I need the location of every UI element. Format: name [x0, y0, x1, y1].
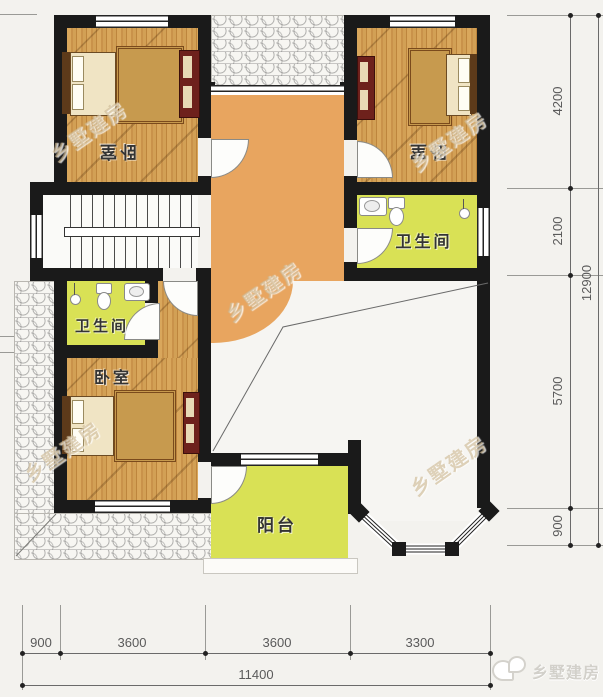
wall	[211, 453, 241, 466]
dimension-line	[22, 685, 490, 686]
bay-wall-post	[445, 542, 459, 556]
window	[390, 15, 455, 28]
dim-tick	[488, 651, 493, 656]
dim-tick	[348, 651, 353, 656]
dim-tick	[20, 651, 25, 656]
dim-tick	[568, 13, 573, 18]
dimension-label: 4200	[550, 81, 564, 121]
extension-line	[490, 605, 491, 690]
dim-tick	[568, 506, 573, 511]
pillow	[458, 58, 470, 83]
chat-bubble-icon	[508, 656, 526, 673]
wall	[54, 345, 158, 358]
room-label-bathroom-right: 卫生间	[374, 228, 474, 252]
dim-tick	[568, 186, 573, 191]
shower-head	[70, 294, 81, 305]
toilet	[389, 207, 404, 226]
dimension-label: 900	[550, 506, 564, 546]
dim-tick	[568, 543, 573, 548]
shower-head	[459, 208, 470, 219]
dimension-line	[570, 15, 571, 545]
room-label-bedroom-bottom: 卧室	[73, 364, 153, 388]
wardrobe-door	[360, 90, 368, 110]
roof-tiles-bottom	[14, 513, 213, 560]
roof-terrace-tiles-top	[211, 15, 346, 87]
wall	[344, 182, 490, 195]
bed-headboard	[62, 52, 70, 114]
dimension-label: 3300	[398, 635, 442, 650]
wardrobe-door	[183, 56, 192, 78]
rug	[114, 390, 176, 462]
wardrobe-door	[183, 86, 192, 108]
sink-basin	[129, 286, 144, 297]
dimension-total-label: 12900	[579, 258, 593, 308]
eave-line	[0, 336, 14, 337]
window	[95, 500, 170, 513]
wall	[30, 182, 211, 195]
wardrobe-door	[186, 424, 194, 443]
dimension-total-label: 11400	[231, 667, 281, 682]
sink-basin	[364, 200, 380, 212]
hall-floor	[211, 95, 344, 281]
toilet	[97, 292, 111, 310]
wardrobe-door	[360, 62, 368, 82]
dim-tick	[20, 683, 25, 688]
dimension-line	[598, 15, 599, 545]
bay-wall-post	[392, 542, 406, 556]
dimension-label: 2100	[550, 211, 564, 251]
dimension-label: 3600	[255, 635, 299, 650]
dim-tick	[596, 13, 601, 18]
wall	[344, 15, 357, 140]
hall-window-sill	[211, 85, 344, 95]
room-label-bathroom-left: 卫生间	[56, 315, 148, 336]
wall	[344, 268, 490, 281]
extension-line	[507, 188, 603, 189]
dimension-label: 5700	[550, 371, 564, 411]
dim-tick	[488, 683, 493, 688]
shower-hose	[463, 199, 464, 209]
floor-plan-canvas: 卧室 卧室 卫生间 卫生间 卧室 阳台 乡墅建房 乡墅建房 乡墅建房 乡墅建房 …	[0, 0, 603, 697]
brand-logo-text: 乡墅建房	[532, 659, 602, 683]
window	[477, 208, 490, 256]
dimension-label: 3600	[110, 635, 154, 650]
room-label-balcony: 阳台	[237, 511, 317, 536]
wall	[30, 268, 163, 281]
wall	[477, 281, 490, 508]
pillow	[72, 84, 84, 110]
stair-handrail	[64, 227, 200, 237]
dim-tick	[203, 651, 208, 656]
window	[241, 453, 318, 466]
dim-tick	[568, 273, 573, 278]
pillow	[72, 56, 84, 82]
dimension-line	[22, 653, 490, 654]
dim-tick	[596, 543, 601, 548]
shower-hose	[74, 283, 75, 295]
wall	[348, 440, 361, 514]
wardrobe-door	[186, 398, 194, 417]
extension-line	[0, 14, 37, 15]
extension-line	[507, 15, 603, 16]
dim-tick	[58, 651, 63, 656]
eave-line	[0, 352, 14, 353]
wall	[344, 195, 357, 228]
dimension-label: 900	[23, 635, 59, 650]
balcony-slab-edge	[203, 558, 358, 574]
window	[30, 215, 43, 258]
window	[96, 15, 168, 28]
